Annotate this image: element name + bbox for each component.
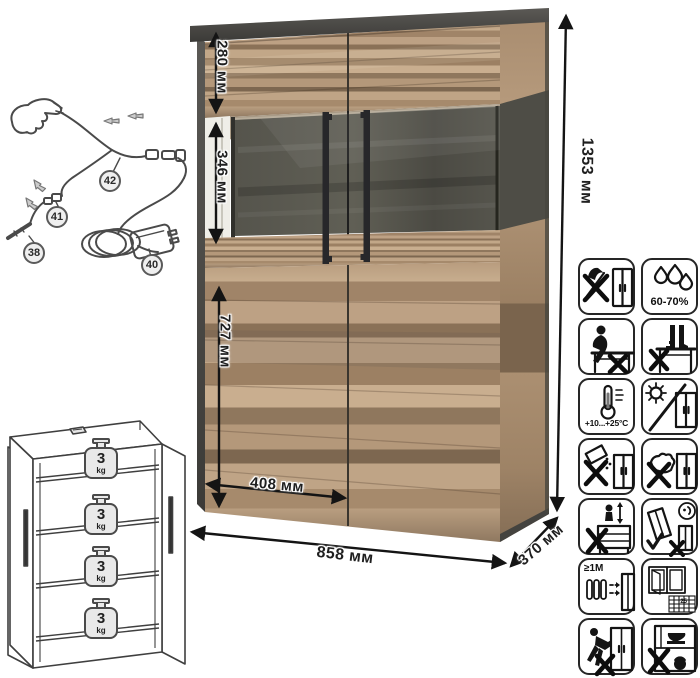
no-dragging-icon — [580, 620, 637, 677]
humidity-range-label: 60-70% — [643, 296, 696, 308]
assemble-tilted-icon — [643, 500, 700, 557]
callout-38-label: 38 — [28, 247, 40, 259]
callout-38: 38 — [23, 242, 45, 264]
tile-no-heavy-objects-inside — [641, 618, 698, 675]
shelf-load-value: 3 — [97, 611, 105, 626]
tile-assemble-tilted — [641, 498, 698, 555]
tile-humidity-range: 60-70% — [641, 258, 698, 315]
humidity-range-icon — [643, 260, 700, 317]
dim-door-height: 727 мм — [217, 314, 234, 368]
tile-no-spilling-liquids — [578, 438, 635, 495]
temperature-range-label: +10...+25°С — [580, 418, 633, 428]
shelf-load-badge: 3kg — [83, 438, 119, 479]
cabinet-photo — [190, 8, 549, 542]
tile-no-direct-sunlight — [641, 378, 698, 435]
shelf-load-value: 3 — [97, 507, 105, 522]
shelf-load-unit: kg — [96, 626, 105, 635]
shelf-load-value: 3 — [97, 451, 105, 466]
no-sharp-tools-icon — [580, 260, 637, 317]
ventilation-days-label: 25 — [680, 599, 687, 605]
tile-keep-distance-from-heat: ≥1М — [578, 558, 635, 615]
tile-no-sitting — [578, 318, 635, 375]
tile-no-sharp-tools — [578, 258, 635, 315]
ventilate-room-icon — [643, 560, 700, 617]
led-kit-illustration — [8, 99, 186, 259]
no-sitting-icon — [580, 320, 637, 377]
no-abrasive-cleaning-icon — [643, 440, 700, 497]
no-heavy-objects-inside-icon — [643, 620, 700, 677]
keep-distance-label: ≥1М — [584, 563, 603, 574]
shelf-load-badge: 3kg — [83, 494, 119, 535]
no-direct-sunlight-icon — [643, 380, 700, 437]
dim-height-total: 1353 мм — [576, 138, 595, 205]
tile-no-standing — [641, 318, 698, 375]
callout-40-label: 40 — [146, 259, 158, 271]
product-spec-sheet: 280 мм 346 мм 727 мм 408 мм 858 мм 370 м… — [0, 0, 700, 678]
tile-no-jumping — [578, 498, 635, 555]
dim-glass-section-height: 346 мм — [214, 150, 231, 204]
temperature-range-icon — [580, 380, 637, 437]
shelf-load-unit: kg — [96, 522, 105, 531]
no-jumping-icon — [580, 500, 637, 557]
tile-no-abrasive-cleaning — [641, 438, 698, 495]
tile-no-dragging — [578, 618, 635, 675]
no-standing-icon — [643, 320, 700, 377]
shelf-load-unit: kg — [96, 574, 105, 583]
callout-41: 41 — [46, 206, 68, 228]
shelf-load-unit: kg — [96, 466, 105, 475]
callout-41-label: 41 — [51, 211, 63, 223]
no-spilling-liquids-icon — [580, 440, 637, 497]
shelf-load-badge: 3kg — [83, 598, 119, 639]
shelf-load-badge: 3kg — [83, 546, 119, 587]
shelf-load-value: 3 — [97, 559, 105, 574]
tile-ventilate-room: 25 — [641, 558, 698, 615]
callout-42: 42 — [99, 170, 121, 192]
dim-top-section-height: 280 мм — [214, 40, 231, 94]
callout-40: 40 — [141, 254, 163, 276]
callout-42-label: 42 — [104, 175, 116, 187]
tile-temperature-range: +10...+25°С — [578, 378, 635, 435]
